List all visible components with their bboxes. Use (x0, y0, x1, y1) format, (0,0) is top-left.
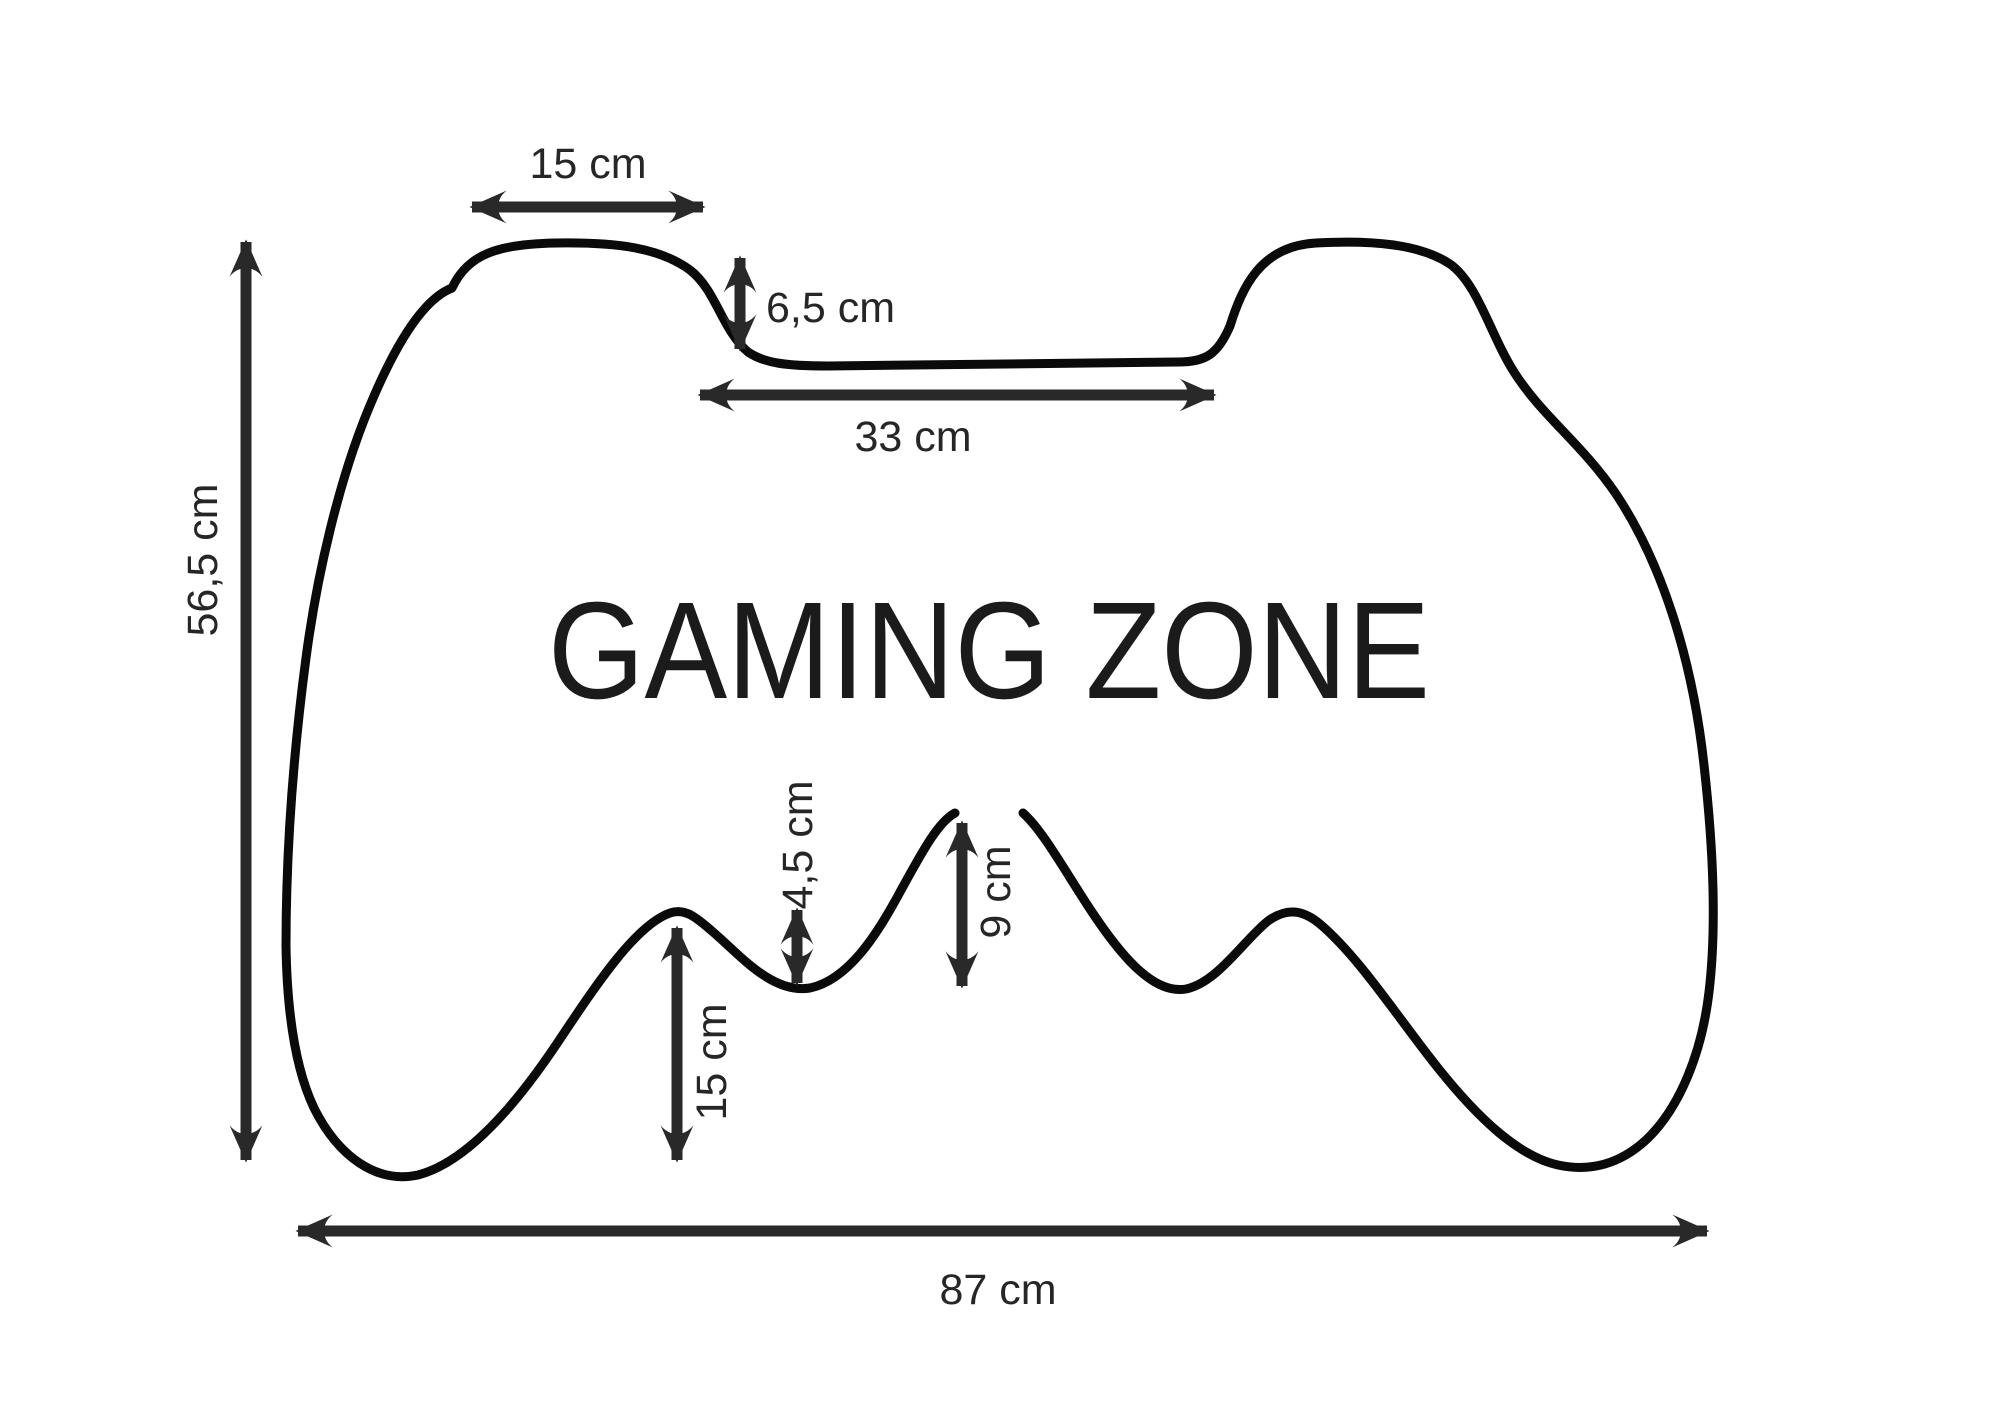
title-text: GAMING ZONE (548, 574, 1430, 728)
dim-label-hump-depth: 6,5 cm (766, 284, 895, 332)
dim-label-middle-bump-height: 9 cm (972, 845, 1020, 938)
dim-label-grip-height: 15 cm (688, 1003, 736, 1120)
dim-label-total-width: 87 cm (939, 1266, 1056, 1314)
controller-dimension-diagram: 15 cm 6,5 cm 33 cm 56,5 cm 4,5 cm 9 cm 1… (0, 0, 2000, 1414)
dim-label-valley-depth: 4,5 cm (774, 780, 822, 909)
dim-label-total-height: 56,5 cm (179, 484, 227, 637)
diagram-canvas: 15 cm 6,5 cm 33 cm 56,5 cm 4,5 cm 9 cm 1… (0, 0, 2000, 1414)
dim-label-middle-width: 33 cm (854, 413, 971, 461)
dim-label-hump-width: 15 cm (529, 140, 646, 188)
